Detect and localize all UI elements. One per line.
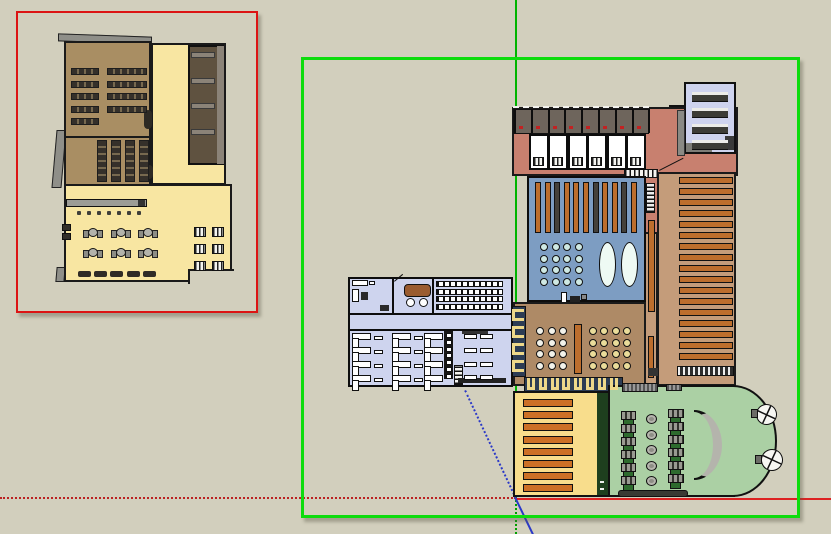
selection-layer: [0, 0, 831, 534]
selection-box-green[interactable]: [301, 57, 800, 518]
modeling-viewport[interactable]: [0, 0, 831, 534]
selection-box-red[interactable]: [16, 11, 258, 313]
